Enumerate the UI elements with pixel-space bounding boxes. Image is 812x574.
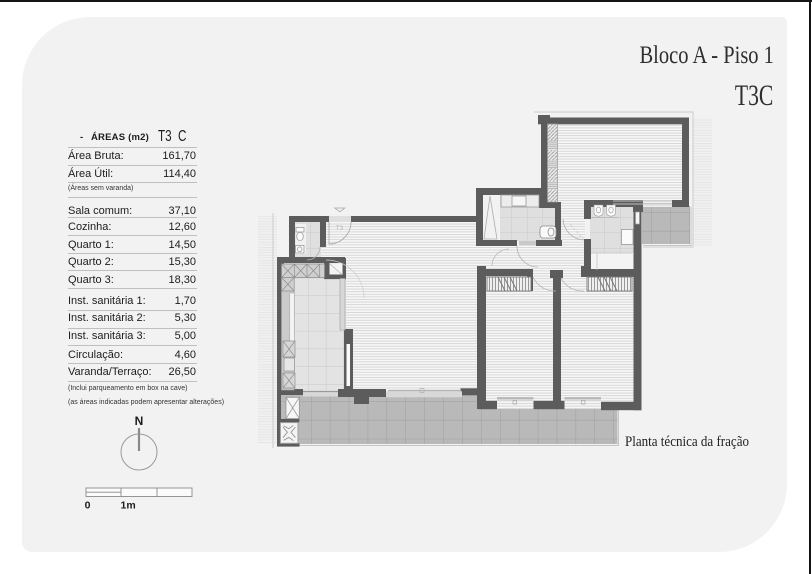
svg-text:1m: 1m [121, 500, 136, 512]
svg-text:N: N [135, 414, 144, 428]
svg-text:T3: T3 [336, 225, 344, 232]
svg-text:0: 0 [85, 500, 91, 512]
